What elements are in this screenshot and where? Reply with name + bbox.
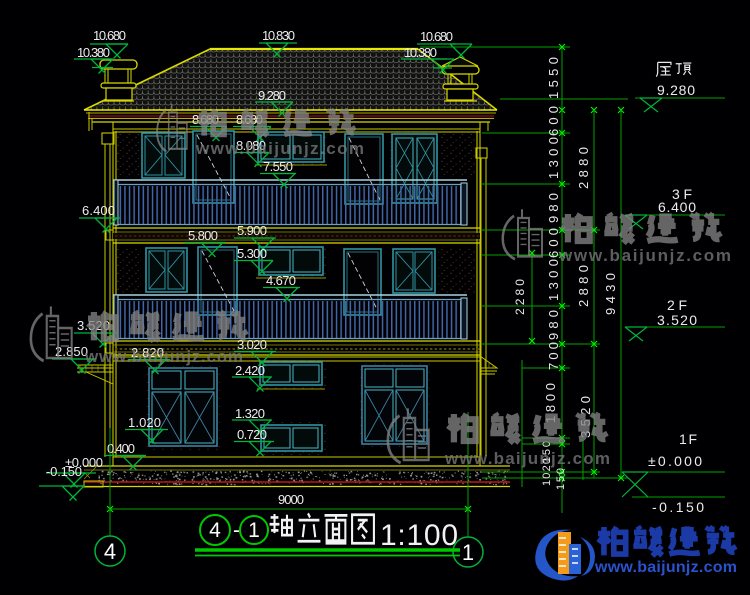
svg-text:1.020: 1.020 (128, 415, 161, 430)
svg-text:10.830: 10.830 (262, 28, 295, 43)
svg-text:10.380: 10.380 (77, 45, 110, 60)
svg-text:10.680: 10.680 (93, 28, 126, 43)
svg-text:1:100: 1:100 (380, 519, 458, 552)
svg-text:980: 980 (546, 310, 561, 340)
svg-text:10.380: 10.380 (404, 45, 437, 60)
svg-text:1F: 1F (679, 431, 697, 447)
svg-text:-: - (233, 519, 240, 542)
svg-text:6.400: 6.400 (82, 203, 115, 218)
svg-text:1: 1 (462, 540, 474, 565)
svg-text:9000: 9000 (278, 492, 304, 507)
svg-text:7.550: 7.550 (263, 159, 293, 174)
svg-text:www.baijunjz.com: www.baijunjz.com (195, 139, 364, 158)
svg-text:4.670: 4.670 (266, 273, 296, 288)
svg-text:700: 700 (546, 342, 561, 370)
svg-text:0.400: 0.400 (107, 441, 135, 456)
svg-text:10.680: 10.680 (420, 29, 453, 44)
svg-text:www.baijunjz.com: www.baijunjz.com (84, 347, 243, 366)
svg-text:4: 4 (209, 519, 221, 542)
svg-text:5.900: 5.900 (237, 223, 267, 238)
svg-text:www.baijunjz.com: www.baijunjz.com (594, 559, 737, 576)
svg-text:9.280: 9.280 (657, 82, 695, 98)
svg-text:www.baijunjz.com: www.baijunjz.com (444, 449, 610, 468)
svg-text:1: 1 (248, 519, 260, 542)
svg-text:1.320: 1.320 (235, 406, 265, 421)
svg-text:3.520: 3.520 (657, 312, 697, 328)
svg-text:600: 600 (546, 106, 561, 136)
svg-text:9.280: 9.280 (258, 88, 286, 103)
svg-text:-0.150: -0.150 (652, 499, 704, 515)
svg-text:5.300: 5.300 (237, 246, 267, 261)
svg-text:980: 980 (546, 193, 561, 223)
svg-text:0.720: 0.720 (237, 427, 267, 442)
svg-text:150: 150 (555, 468, 567, 490)
svg-text:-0.150: -0.150 (46, 464, 82, 479)
svg-text:4: 4 (104, 539, 116, 564)
svg-text:5.800: 5.800 (188, 228, 218, 243)
